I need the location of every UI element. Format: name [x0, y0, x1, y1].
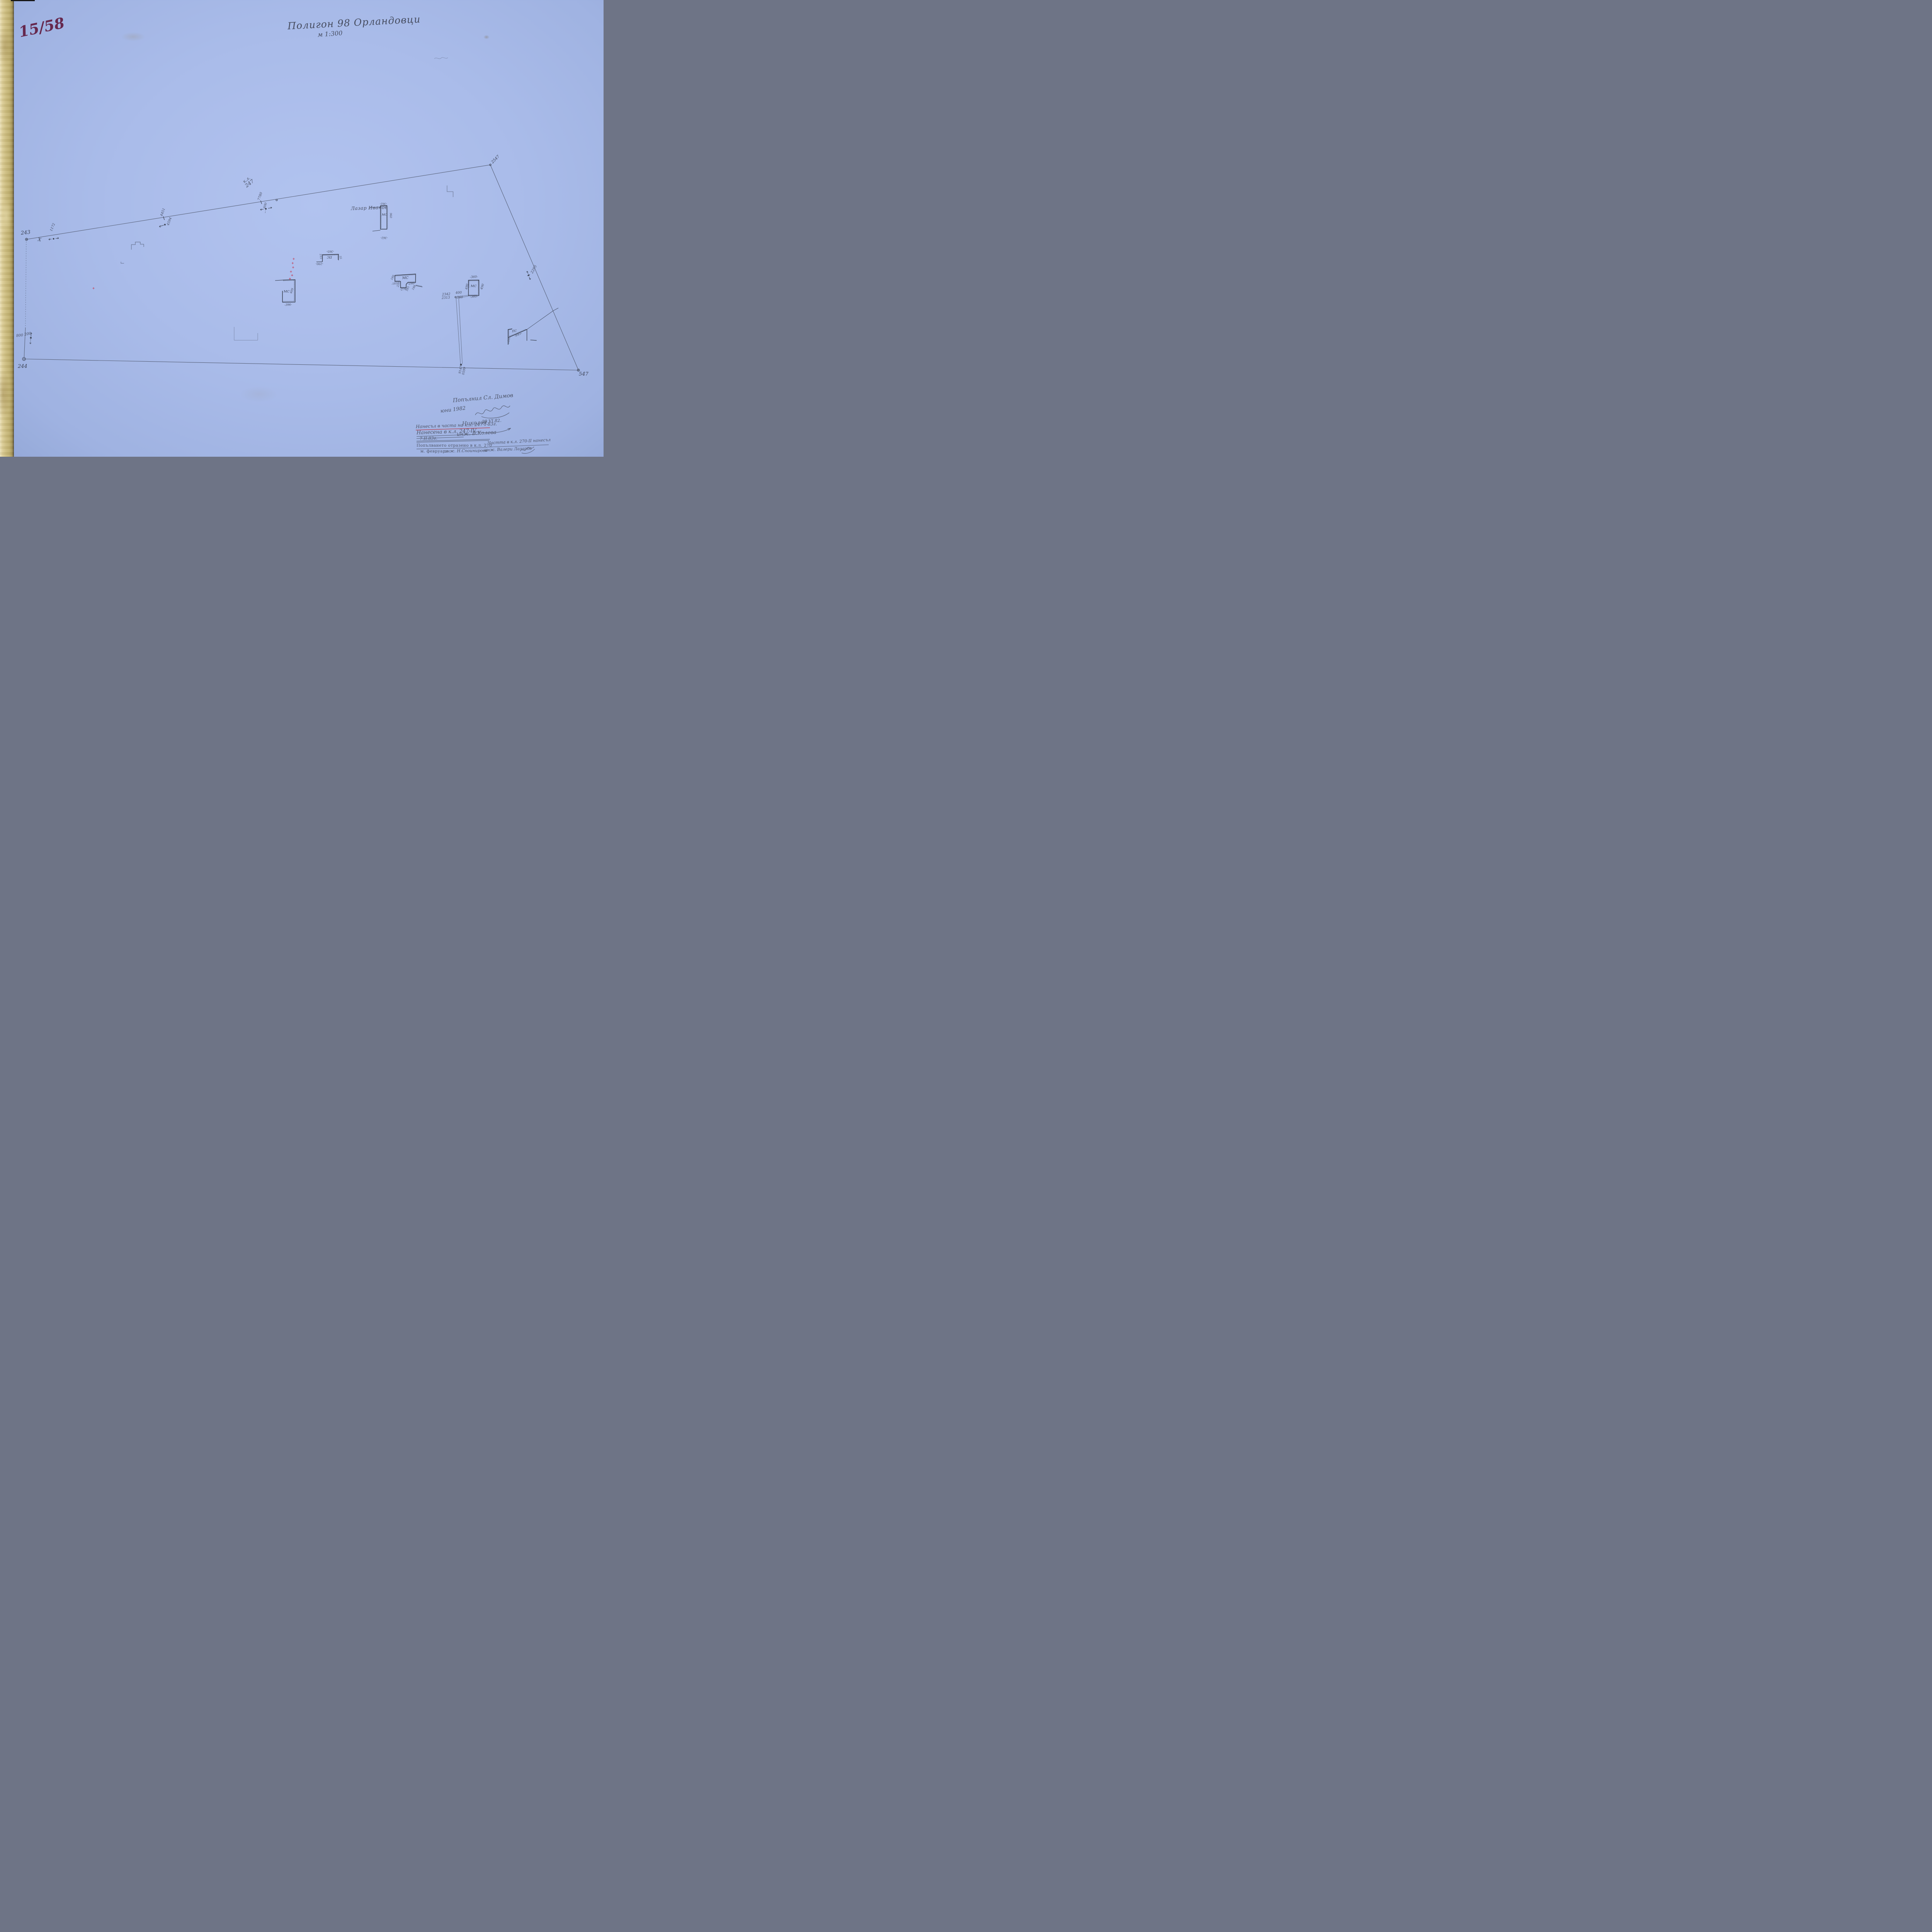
signature-main: [475, 406, 510, 418]
bldg-lazar-dim-top: -362-: [380, 202, 387, 205]
bldg-ps-center-type: ПС: [327, 255, 332, 259]
parcel-boundary: [24, 165, 578, 370]
ref-2313: 2313: [442, 296, 450, 300]
blueprint-sheet: 15/58 Полигон 98 Орландовци м 1:300 243 …: [0, 0, 604, 457]
vertex-243: 243: [20, 230, 31, 236]
bldg-lazar-type: МС: [382, 213, 387, 216]
red-cross-marks: [92, 258, 294, 289]
bldg-ms-square-type: МС: [471, 285, 476, 288]
station-marks: [30, 201, 531, 366]
note-eng2: инж. Н.Споинирова: [444, 449, 488, 454]
building-ps-right: [508, 308, 558, 345]
dist-760: 760: [457, 296, 463, 299]
faint-scribble: [434, 58, 448, 59]
station-800: 800: [16, 333, 24, 338]
note-entered-date: 7.II.83г.: [420, 436, 437, 441]
owner-name: Лазар Иванов: [351, 205, 388, 211]
x-mark: X: [37, 237, 41, 242]
survey-drawing: [0, 0, 604, 457]
bldg-ms-center-dim-bottom: -396-: [284, 303, 292, 306]
signature-scribbles: [434, 58, 535, 454]
bldg-lazar-dim-bottom: -362-: [381, 236, 388, 239]
bldg-ps-center-dim-top: -365-: [327, 250, 334, 253]
bldg-ms-u-type: МС: [402, 277, 408, 281]
fence-lines: [121, 185, 453, 340]
vertex-547: 547: [579, 372, 588, 377]
vertex-244: 244: [18, 364, 27, 369]
dist-400: 400: [456, 291, 462, 295]
bldg-lazar-dim-right: 960: [389, 213, 392, 218]
track-lines: [456, 295, 468, 364]
bldg-ps-center-dim-left: 215: [319, 254, 322, 259]
plan-scale: м 1:300: [318, 30, 343, 38]
bldg-ms-center-type: МС: [284, 290, 289, 294]
bldg-ms-square-dim-bottom: -360-: [470, 295, 478, 298]
bldg-ms-square-dim-top: -360-: [470, 275, 478, 279]
note-reflected: Попълването отразено в к.л. 270: [417, 444, 492, 448]
bldg-ps-center-dim-right: 55: [339, 255, 342, 259]
bldg-ps-right-type: ПС: [512, 329, 517, 333]
bldg-ps-center-dim-bottom: -290-: [316, 262, 323, 265]
